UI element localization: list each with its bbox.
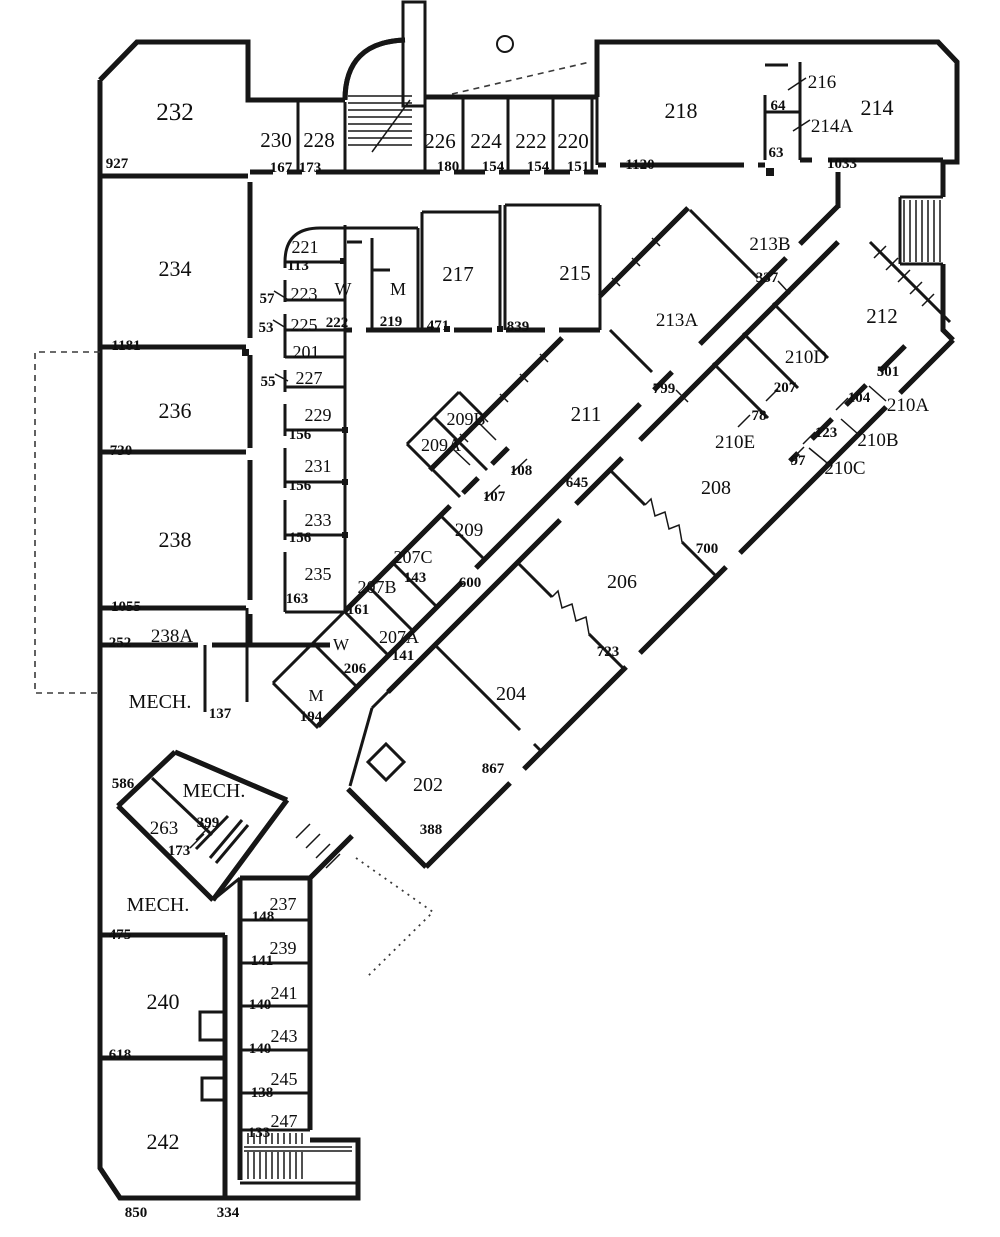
dim-label-148: 148	[252, 909, 275, 925]
room-label-236: 236	[159, 398, 192, 423]
dim-label-141: 141	[251, 953, 274, 969]
dim-label-618: 618	[109, 1047, 132, 1063]
dim-label-138: 138	[251, 1085, 274, 1101]
room-label-227: 227	[296, 368, 323, 388]
room-label-226: 226	[424, 129, 456, 153]
room-label-210b: 210B	[857, 430, 898, 451]
dim-label-222: 222	[326, 315, 349, 331]
room-label-245: 245	[271, 1069, 298, 1089]
dim-label-180: 180	[437, 159, 460, 175]
room-label-mech: MECH.	[129, 691, 192, 713]
dim-label-107: 107	[483, 489, 506, 505]
wall-cavity-overlay	[100, 40, 957, 1198]
room-label-206: 206	[607, 571, 637, 593]
room-label-w: W	[335, 279, 352, 299]
dim-label-163: 163	[286, 591, 309, 607]
dim-label-1120: 1120	[625, 157, 654, 173]
dim-label-839: 839	[507, 319, 530, 335]
room-label-263: 263	[150, 818, 179, 839]
dim-label-156: 156	[289, 478, 312, 494]
room-label-m: M	[308, 686, 323, 705]
room-label-221: 221	[292, 237, 319, 257]
dim-label-78: 78	[752, 408, 767, 424]
dim-label-141: 141	[392, 648, 415, 664]
dim-label-53: 53	[259, 320, 274, 336]
dim-label-108: 108	[510, 463, 533, 479]
dim-label-471: 471	[427, 318, 450, 334]
room-label-234: 234	[159, 256, 192, 281]
room-label-241: 241	[271, 983, 298, 1003]
dim-label-1033: 1033	[827, 156, 857, 172]
room-label-214: 214	[861, 95, 894, 120]
room-label-mech: MECH.	[183, 780, 246, 802]
room-label-239: 239	[270, 938, 297, 958]
room-label-210e: 210E	[715, 432, 755, 453]
room-label-209: 209	[455, 520, 484, 541]
room-label-225: 225	[291, 315, 318, 335]
room-label-202: 202	[413, 774, 443, 796]
dim-label-700: 700	[696, 541, 719, 557]
dim-label-207: 207	[774, 380, 797, 396]
room-label-230: 230	[260, 128, 292, 152]
floor-plan-svg: 232230228226224222220218216214A214234236…	[0, 0, 1000, 1237]
room-label-223: 223	[291, 284, 318, 304]
dim-label-475: 475	[109, 927, 132, 943]
floor-plan-page: 232230228226224222220218216214A214234236…	[0, 0, 1000, 1237]
room-label-217: 217	[442, 262, 474, 286]
room-label-210c: 210C	[824, 458, 865, 479]
room-label-204: 204	[496, 683, 526, 705]
room-label-207b: 207B	[357, 577, 396, 597]
room-label-235: 235	[305, 564, 332, 584]
room-label-207c: 207C	[393, 547, 432, 567]
room-label-232: 232	[156, 99, 194, 126]
dim-label-730: 730	[110, 443, 133, 459]
dim-label-173: 173	[299, 160, 322, 176]
room-label-222: 222	[515, 129, 547, 153]
room-label-224: 224	[470, 129, 502, 153]
dim-label-123: 123	[815, 425, 838, 441]
room-label-242: 242	[147, 1129, 180, 1154]
dim-label-1055: 1055	[111, 599, 141, 615]
room-label-216: 216	[808, 72, 837, 93]
dim-label-154: 154	[482, 159, 505, 175]
dim-label-64: 64	[771, 98, 787, 114]
room-label-210d: 210D	[785, 347, 827, 368]
dim-label-206: 206	[344, 661, 367, 677]
dim-label-723: 723	[597, 644, 620, 660]
room-label-238: 238	[159, 527, 192, 552]
dim-label-645: 645	[566, 475, 589, 491]
room-label-213a: 213A	[656, 310, 699, 331]
room-label-201: 201	[293, 342, 320, 362]
room-label-209a: 209A	[421, 435, 461, 455]
dim-label-167: 167	[270, 160, 293, 176]
room-label-208: 208	[701, 477, 731, 499]
room-label-218: 218	[665, 98, 698, 123]
room-label-228: 228	[303, 128, 335, 152]
dim-label-154: 154	[527, 159, 550, 175]
dim-label-140: 140	[249, 1041, 272, 1057]
dim-label-97: 97	[791, 453, 807, 469]
dim-label-867: 867	[482, 761, 505, 777]
room-label-233: 233	[305, 510, 332, 530]
dim-label-600: 600	[459, 575, 482, 591]
dim-label-156: 156	[289, 427, 312, 443]
site-circle-marker	[497, 36, 513, 52]
room-label-238a: 238A	[151, 626, 194, 647]
room-label-mech: MECH.	[127, 894, 190, 916]
dim-label-399: 399	[197, 815, 220, 831]
dim-label-133: 133	[248, 1125, 271, 1141]
dim-label-151: 151	[567, 159, 590, 175]
dim-label-143: 143	[404, 570, 427, 586]
dim-label-113: 113	[287, 258, 309, 274]
dim-label-137: 137	[209, 706, 232, 722]
dim-label-55: 55	[261, 374, 276, 390]
dim-label-194: 194	[300, 709, 323, 725]
room-label-m: M	[390, 279, 406, 299]
room-label-209b: 209B	[446, 409, 485, 429]
room-label-212: 212	[866, 304, 898, 328]
dim-label-161: 161	[347, 602, 370, 618]
dim-label-173: 173	[168, 843, 191, 859]
room-label-243: 243	[271, 1026, 298, 1046]
dim-label-388: 388	[420, 822, 443, 838]
dim-label-850: 850	[125, 1205, 148, 1221]
dim-label-586: 586	[112, 776, 135, 792]
dim-label-104: 104	[848, 390, 871, 406]
dotted-reference-lines	[356, 858, 433, 978]
room-label-215: 215	[559, 261, 591, 285]
room-label-247: 247	[271, 1111, 298, 1131]
room-label-220: 220	[557, 129, 589, 153]
dim-label-927: 927	[106, 156, 129, 172]
dim-label-140: 140	[249, 997, 272, 1013]
room-label-229: 229	[305, 405, 332, 425]
dim-label-57: 57	[260, 291, 276, 307]
room-label-w: W	[333, 635, 350, 654]
dim-label-156: 156	[289, 530, 312, 546]
dim-label-252: 252	[109, 635, 132, 651]
dim-label-501: 501	[877, 364, 900, 380]
walls-partitions	[152, 2, 950, 1183]
room-label-240: 240	[147, 989, 180, 1014]
dim-label-63: 63	[769, 145, 784, 161]
room-label-213b: 213B	[749, 234, 790, 255]
room-label-210a: 210A	[887, 395, 930, 416]
dim-label-1181: 1181	[111, 338, 140, 354]
room-label-231: 231	[305, 456, 332, 476]
room-label-214a: 214A	[811, 116, 854, 137]
dim-label-334: 334	[217, 1205, 240, 1221]
dim-label-219: 219	[380, 314, 403, 330]
room-label-207a: 207A	[379, 627, 419, 647]
dim-label-799: 799	[653, 381, 676, 397]
room-label-211: 211	[571, 402, 602, 426]
dim-label-337: 337	[756, 270, 779, 286]
